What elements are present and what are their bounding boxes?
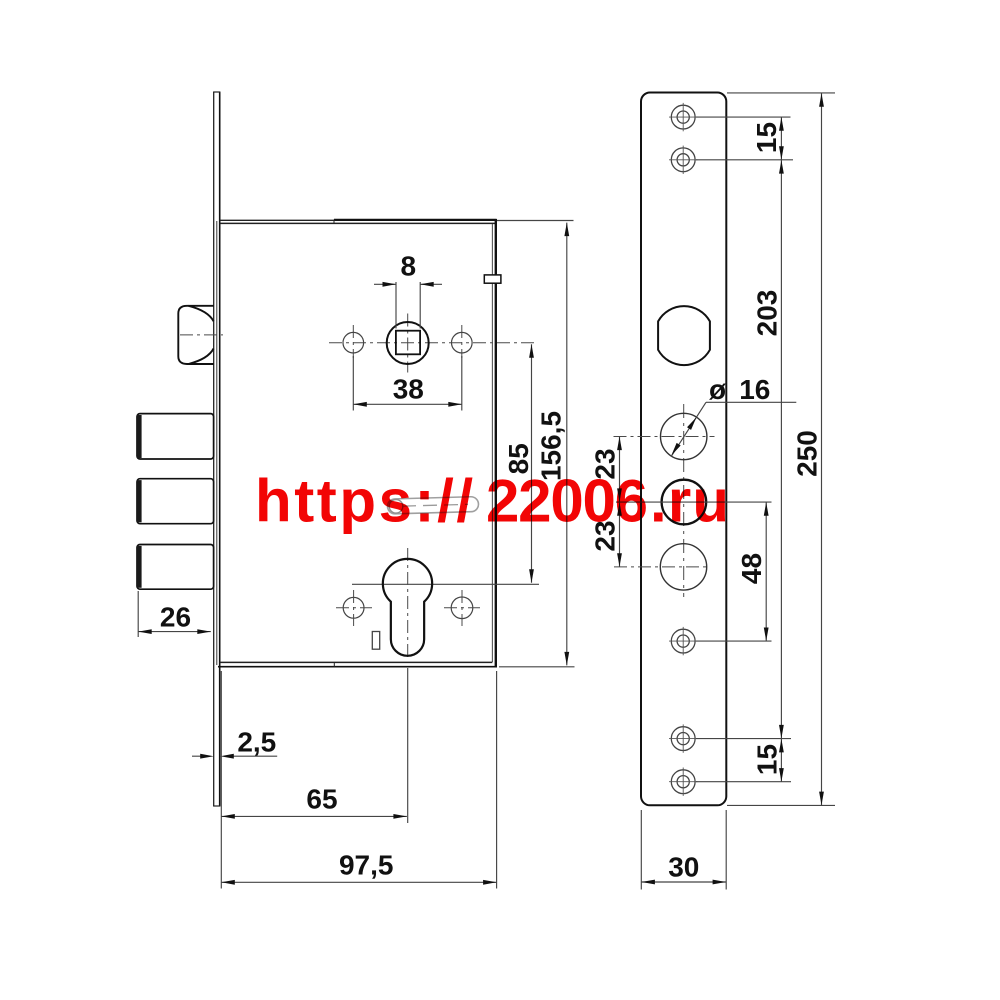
svg-text:48: 48 xyxy=(736,553,767,584)
svg-text:65: 65 xyxy=(306,784,337,815)
svg-text:26: 26 xyxy=(160,602,191,633)
svg-text:38: 38 xyxy=(393,373,424,404)
svg-text:15: 15 xyxy=(752,744,783,775)
svg-text:https://22006.ru: https://22006.ru xyxy=(255,468,729,535)
svg-text:15: 15 xyxy=(751,122,782,153)
svg-text:250: 250 xyxy=(792,430,823,477)
svg-text:ø: ø xyxy=(709,374,726,405)
svg-text:30: 30 xyxy=(668,851,699,882)
svg-text:16: 16 xyxy=(739,374,770,405)
svg-text:97,5: 97,5 xyxy=(339,849,394,880)
svg-text:203: 203 xyxy=(752,290,783,337)
svg-text:8: 8 xyxy=(401,250,417,281)
svg-text:2,5: 2,5 xyxy=(237,727,276,758)
